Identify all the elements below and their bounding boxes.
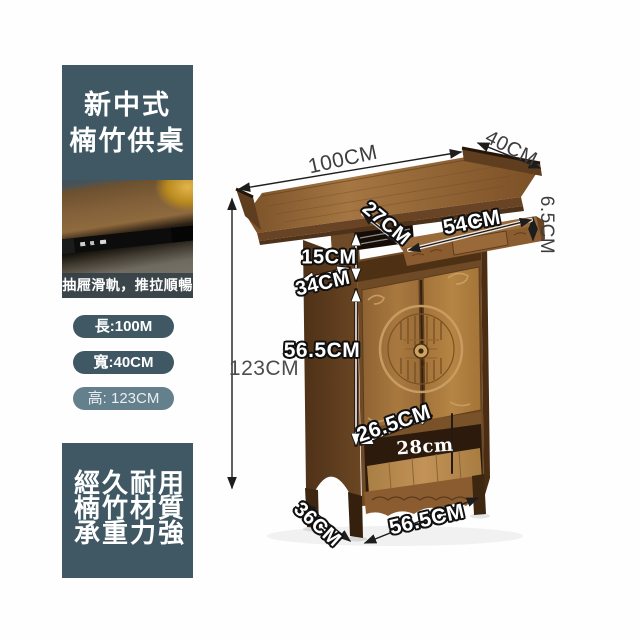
dim-shelf-inner-height: 28cm [396, 435, 454, 460]
product-infographic: 新中式 楠竹供桌 抽屜滑軌，推拉順暢 長:100M 寬:40CM 高: 123C… [0, 0, 640, 640]
dim-gap-height: 15CM [301, 247, 356, 270]
dim-tier-thickness: 6.5CM [535, 196, 557, 254]
dim-total-height: 123CM [229, 357, 299, 381]
